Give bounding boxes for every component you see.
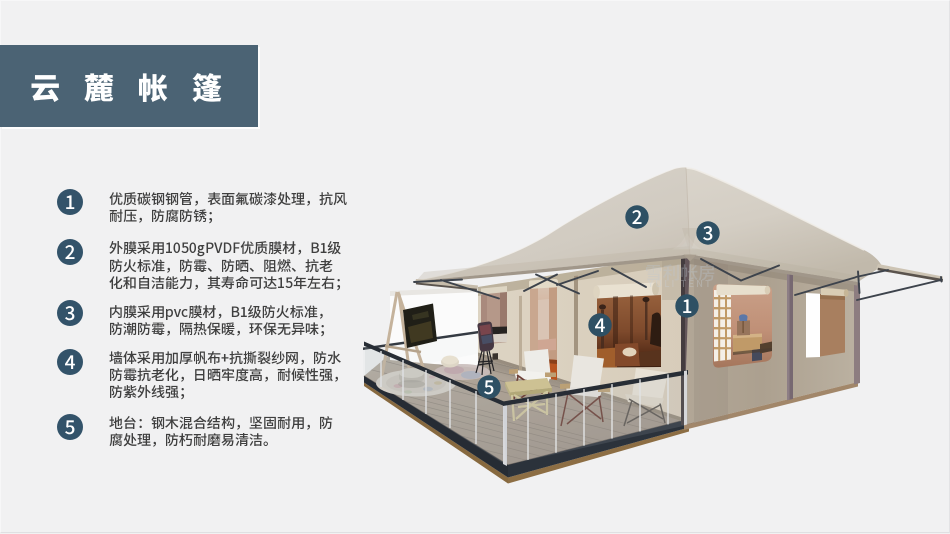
- svg-text:3: 3: [703, 219, 714, 246]
- svg-text:2: 2: [632, 203, 643, 230]
- svg-text:4: 4: [595, 311, 606, 338]
- svg-text:YULI TENT: YULI TENT: [647, 276, 713, 290]
- svg-text:1: 1: [682, 292, 693, 319]
- svg-text:5: 5: [484, 373, 495, 400]
